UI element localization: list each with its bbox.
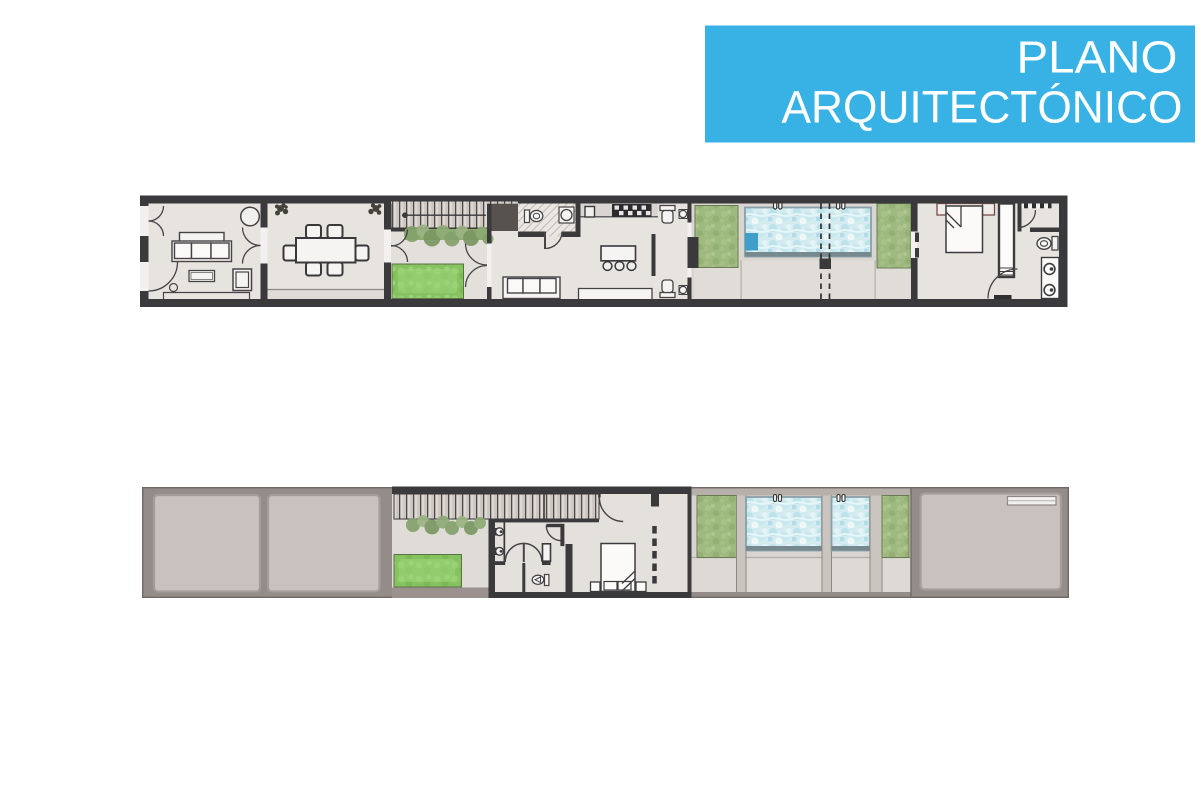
svg-text:PLANO: PLANO bbox=[1017, 32, 1178, 83]
svg-text:ARQUITECTÓNICO: ARQUITECTÓNICO bbox=[782, 82, 1183, 133]
